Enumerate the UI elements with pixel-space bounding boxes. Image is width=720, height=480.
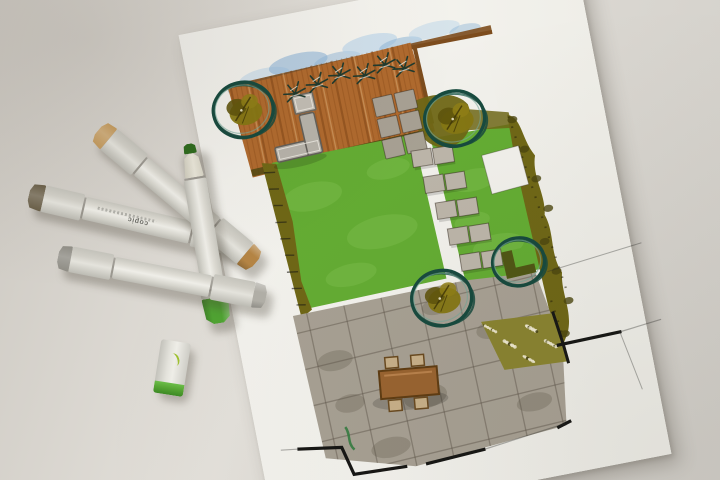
marker-nib-holder — [181, 152, 204, 179]
stepping-stone — [469, 223, 491, 242]
hedge-fleck — [564, 286, 567, 288]
dining-chair — [385, 357, 399, 369]
landing-slab — [377, 115, 401, 138]
stepping-stone — [447, 226, 469, 245]
landing-slab — [394, 89, 418, 112]
cap-leaf-mark — [167, 352, 181, 368]
stepping-stone — [459, 252, 481, 271]
landing-slab — [372, 94, 396, 117]
stepping-stone — [444, 171, 466, 190]
marker-nib-tip — [183, 142, 197, 154]
photo-stage: copic — [0, 0, 720, 480]
stepping-stone — [411, 148, 433, 167]
stepping-stone — [423, 174, 445, 193]
stepping-stone — [432, 145, 454, 164]
stepping-stone — [435, 200, 457, 219]
landing-slab — [382, 136, 406, 159]
dining-chair — [388, 399, 402, 411]
landing-slab — [399, 110, 423, 133]
dining-chair — [411, 354, 425, 366]
cap-green-band — [153, 380, 185, 397]
stepping-stone — [457, 197, 479, 216]
dining-chair — [414, 397, 428, 409]
